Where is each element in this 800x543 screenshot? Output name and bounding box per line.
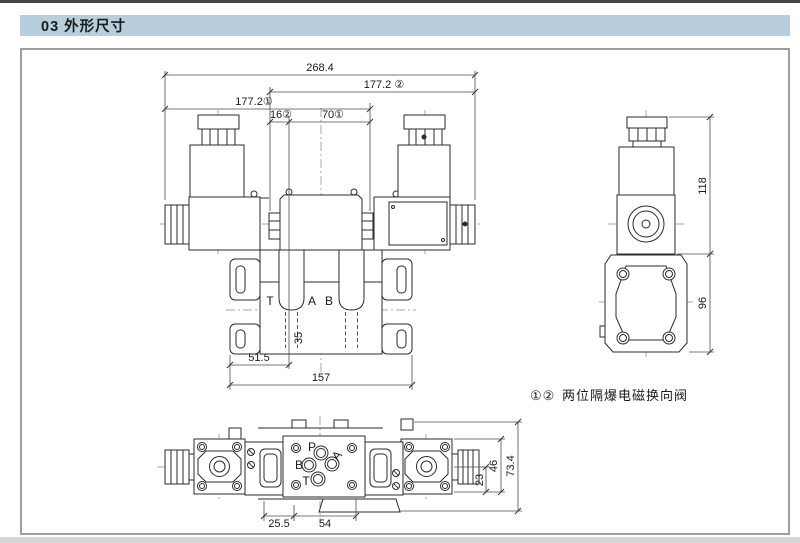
dim-height-lower: 96 — [697, 297, 709, 309]
dim-spacing: 54 — [319, 518, 331, 530]
junction-box-left — [189, 197, 260, 250]
dim-overall-width: 268.4 — [306, 62, 334, 74]
drawing-frame: T A B 35 268.4 177.2 ② 177.2① 16② 70① 5 — [20, 48, 790, 535]
bottom-view: P A B T 25.5 54 23 46 73.4 — [157, 416, 522, 530]
valve-body-front — [260, 195, 373, 252]
dim-plate-width: 157 — [312, 372, 330, 384]
section-header-title: 03 外形尺寸 — [41, 15, 126, 36]
valve-body-side — [617, 195, 675, 254]
dim-hole-offset: 51.5 — [248, 352, 269, 364]
dim-port-depth: 35 — [293, 332, 305, 344]
solenoid-left — [190, 115, 244, 197]
dim-offset-left: 25.5 — [268, 518, 289, 530]
dim-width-b: 177.2 ② — [364, 79, 405, 91]
side-view: 118 96 — [599, 110, 714, 360]
cable-gland-left-top — [165, 450, 195, 484]
solenoid-side — [619, 117, 674, 195]
port-bore-right — [339, 250, 364, 310]
port-bore-left — [279, 250, 304, 310]
solenoid-flange-left — [194, 439, 245, 494]
dim-offset-a: 70① — [322, 109, 344, 121]
cable-gland-right-front — [450, 205, 475, 244]
top-port-label-b: B — [295, 458, 303, 472]
subplate-front: T A B 35 — [230, 250, 412, 354]
port-block-top: P A B T — [283, 436, 365, 497]
dim-flange-height: 46 — [488, 460, 500, 472]
front-view: T A B 35 268.4 177.2 ② 177.2① 16② 70① 5 — [160, 62, 480, 390]
dim-half-height: 23 — [474, 474, 486, 486]
section-title: 外形尺寸 — [64, 19, 126, 35]
top-port-label-p: P — [308, 440, 316, 454]
front-port-label-t: T — [266, 294, 274, 308]
solenoid-right — [398, 115, 450, 197]
junction-left-top — [245, 442, 283, 495]
dim-overall-height: 73.4 — [505, 455, 517, 476]
cable-gland-left-front — [165, 205, 189, 244]
caption-markers: ①② — [530, 388, 555, 403]
dim-offset-b: 16② — [270, 109, 292, 121]
junction-right-top — [365, 442, 403, 495]
junction-box-right — [374, 197, 450, 250]
section-number: 03 — [41, 19, 59, 35]
front-port-label-b: B — [325, 294, 333, 308]
solenoid-flange-right — [401, 439, 452, 494]
subplate-side — [600, 255, 687, 352]
dim-height-upper: 118 — [697, 177, 709, 195]
top-port-label-t: T — [302, 474, 310, 488]
caption: ①② 两位隔爆电磁换向阀 — [530, 388, 688, 403]
dimension-drawing: T A B 35 268.4 177.2 ② 177.2① 16② 70① 5 — [22, 50, 788, 533]
dim-width-a: 177.2① — [235, 96, 273, 108]
caption-text: 两位隔爆电磁换向阀 — [562, 388, 688, 403]
front-port-label-a: A — [308, 294, 316, 308]
page-bottom-strip — [0, 537, 800, 543]
section-header-band: 03 外形尺寸 — [20, 15, 790, 36]
page-top-rule — [0, 0, 800, 3]
